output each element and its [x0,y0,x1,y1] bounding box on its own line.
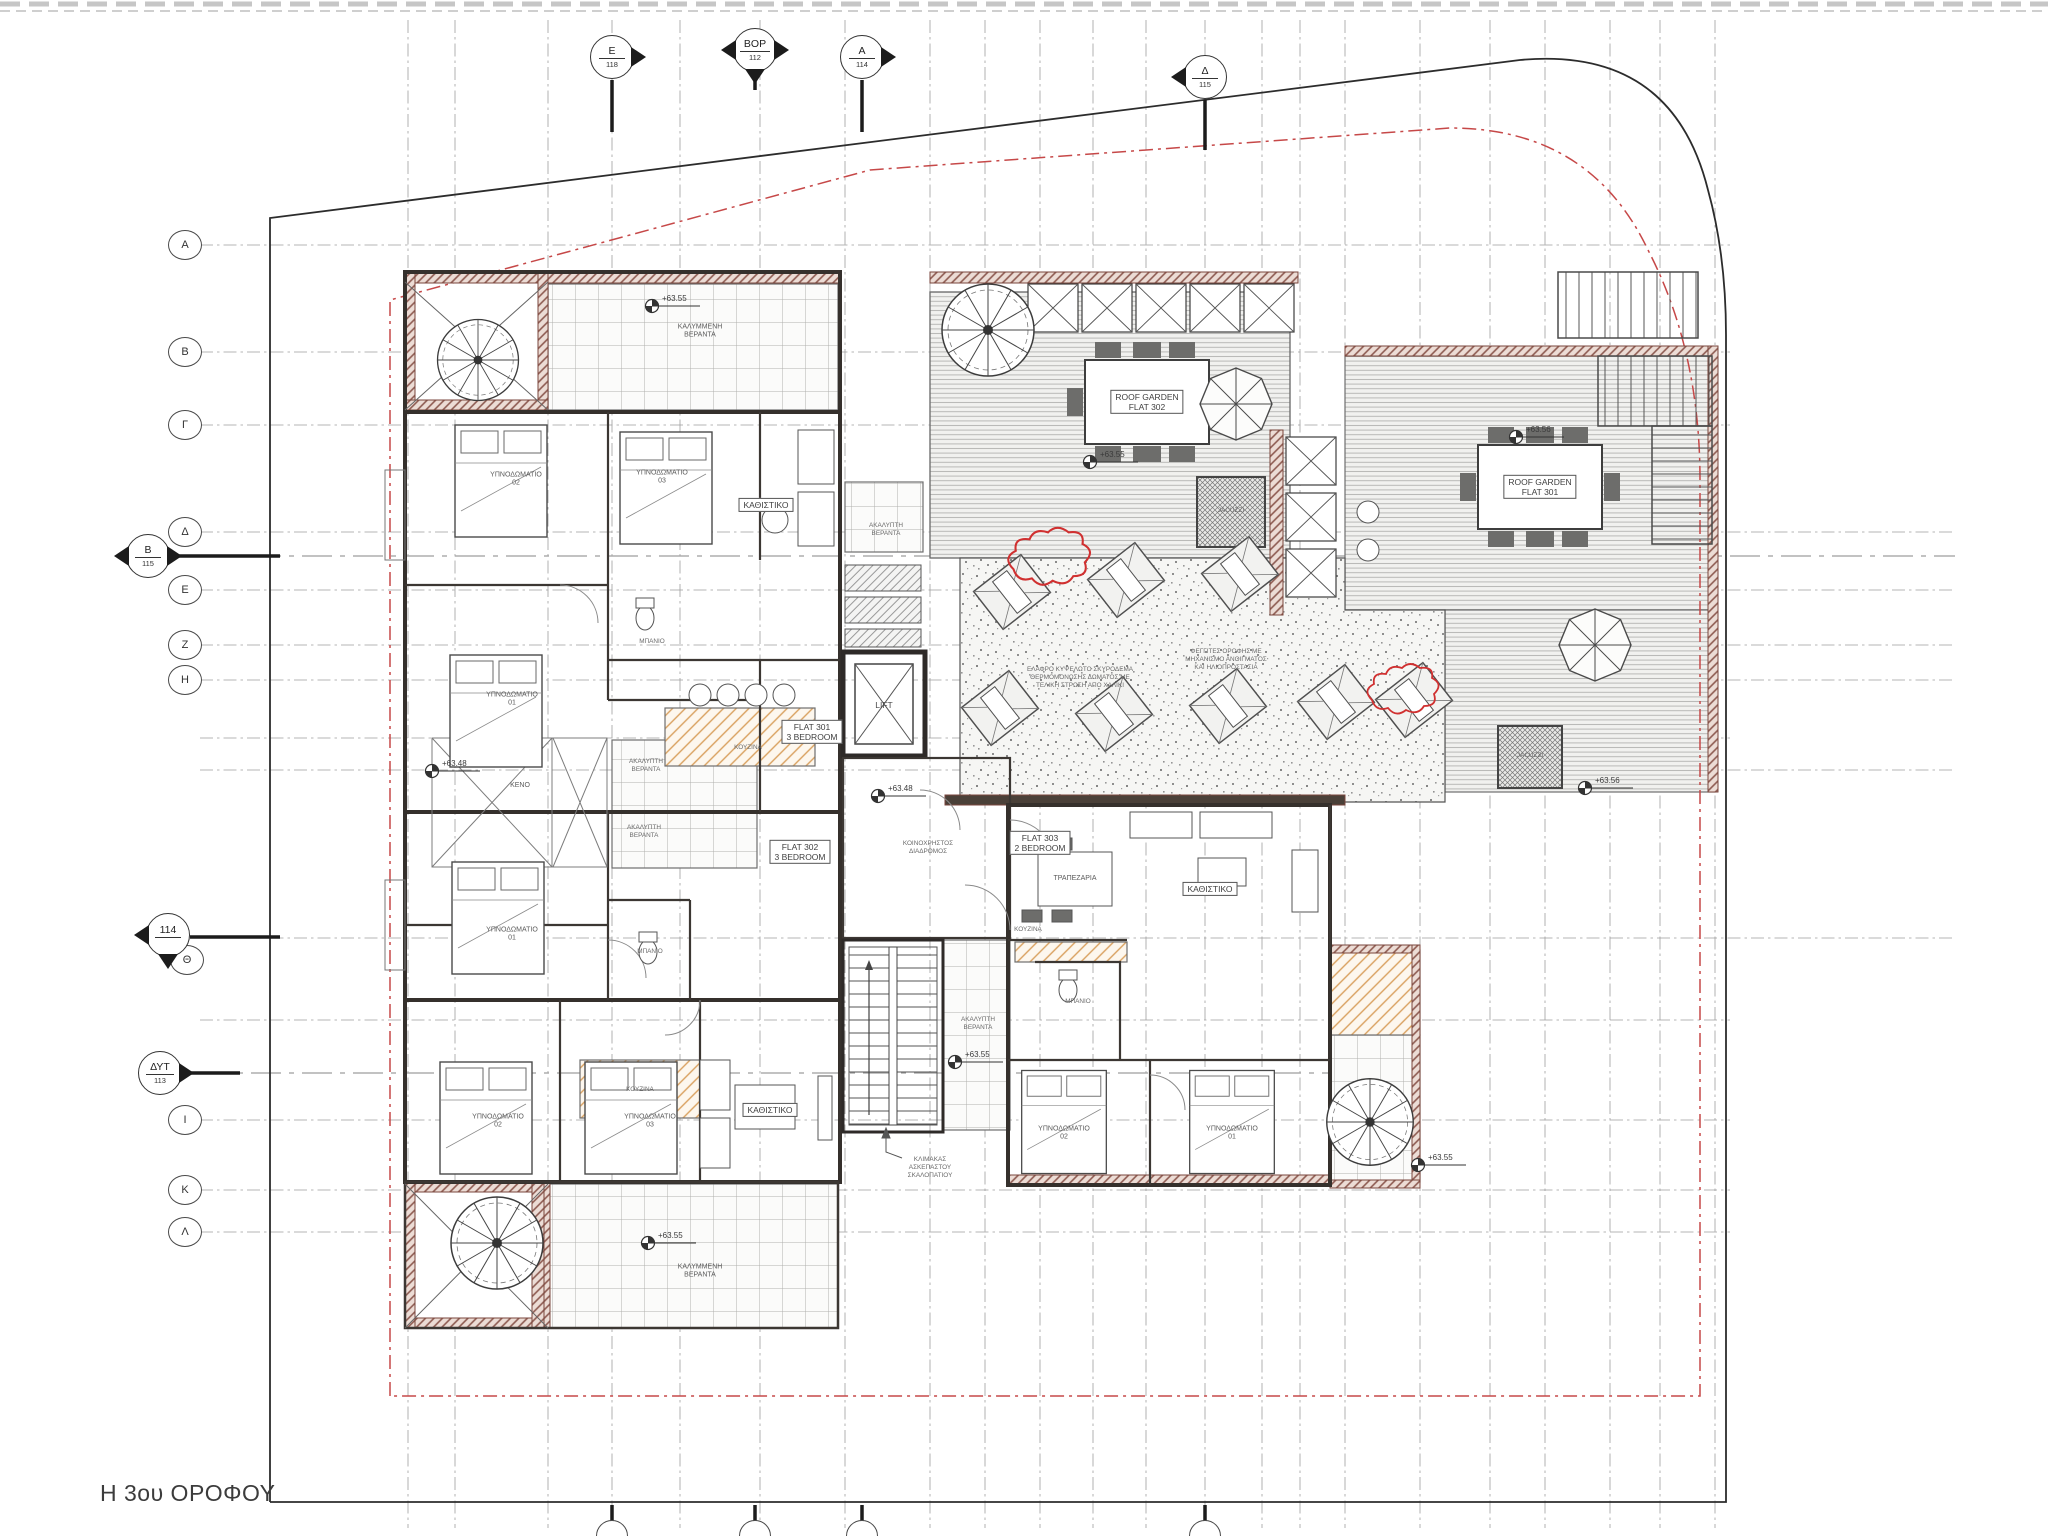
arrow-right-icon [774,40,789,60]
room-label-bath: ΜΠΑΝΙΟ [1065,998,1091,1006]
arrow-right-icon [167,546,182,566]
page-title: Η 3ου ΟΡΟΦΟΥ [100,1480,276,1507]
level-value: +63.55 [1428,1153,1453,1162]
section-marker-number: 115 [142,558,154,568]
section-marker-number: 118 [606,59,618,69]
room-label-bath: ΜΠΑΝΙΟ [639,638,665,646]
room-label-bedroom: ΥΠΝΟΔΩΜΑΤΙΟ 01 [1206,1126,1258,1143]
area-label-open-veranda: ΑΚΑΛΥΠΤΗ ΒΕΡΑΝΤΑ [629,758,663,774]
section-marker-d-115: Δ 115 [1183,55,1227,99]
section-marker-label: 114 [155,924,181,938]
north-marker-label: ΒΟΡ [740,38,770,52]
sheet-edge-band [0,4,2048,11]
grid-bubble-epsilon: Ε [168,575,202,605]
section-marker-e-118: Ε 118 [590,35,634,79]
arrow-right-icon [179,1063,194,1083]
room-label-bedroom: ΥΠΝΟΔΩΜΑΤΙΟ 02 [490,472,542,489]
room-label-living: ΚΑΘΙΣΤΙΚΟ [1183,882,1238,896]
spiral-stair [1327,1079,1413,1165]
flat-tag-301: FLAT 301 3 BEDROOM [781,720,842,744]
arrow-down-icon [745,69,765,84]
arrow-right-icon [631,47,646,67]
room-label-kitchen: ΚΟΥΖΙΝΑ [1014,926,1042,934]
jacuzzi-label: JACUZZI [1517,752,1543,760]
corridor-label: ΚΟΙΝΟΧΡΗΣΤΟΣ ΔΙΑΔΡΟΜΟΣ [903,840,953,856]
grid-bubble-delta: Δ [168,517,202,547]
level-value: +63.55 [658,1231,683,1240]
area-label-covered-veranda: ΚΑΛΥΜΜΕΝΗ ΒΕΡΑΝΤΑ [678,324,723,341]
arrow-left-icon [134,925,149,945]
void-label: ΚΕΝΟ [510,782,530,790]
arrow-left-icon [721,40,736,60]
grid-bubble-iota: Ι [168,1105,202,1135]
roof-garden-302-label: ROOF GARDEN FLAT 302 [1110,390,1183,414]
section-marker-label: ΔΥΤ [146,1061,174,1075]
arrow-left-icon [114,546,129,566]
section-marker-a-114: Α 114 [840,35,884,79]
arrow-right-icon [881,47,896,67]
section-marker-number: 113 [154,1075,166,1085]
level-value: +63.48 [888,784,913,793]
section-marker-number: 115 [1199,79,1211,89]
stair-note: ΚΛΙΜΑΚΑΣ ΑΣΚΕΠΑΣΤΟΥ ΣΚΑΛΟΠΑΤΙΟΥ [908,1156,953,1180]
level-value: +63.48 [442,759,467,768]
room-label-kitchen: ΚΟΥΖΙΝΑ [734,744,762,752]
room-label-bedroom: ΥΠΝΟΔΩΜΑΤΙΟ 01 [486,692,538,709]
roof-garden-301-label: ROOF GARDEN FLAT 301 [1503,475,1576,499]
room-label-bedroom: ΥΠΝΟΔΩΜΑΤΙΟ 02 [472,1114,524,1131]
section-marker-number: 114 [856,59,868,69]
section-marker-label: Δ [1192,65,1218,79]
area-label-open-veranda: ΑΚΑΛΥΠΤΗ ΒΕΡΑΝΤΑ [627,824,661,840]
flat-tag-303: FLAT 303 2 BEDROOM [1009,831,1070,855]
lift-label: LIFT [875,700,892,710]
level-value: +63.56 [1595,776,1620,785]
grid-bubble-alpha: Α [168,230,202,260]
level-value: +63.55 [1100,450,1125,459]
room-label-dining: ΤΡΑΠΕΖΑΡΙΑ [1053,875,1096,883]
north-marker-number: 112 [749,52,761,62]
room-label-bath: ΜΠΑΝΙΟ [637,948,663,956]
roof-note-2: ΦΕΓΓΙΤΕΣ ΟΡΟΦΗΣ ΜΕ ΜΗΧΑΝΙΣΜΟ ΑΝΟΙΓΜΑΤΟΣ … [1185,648,1267,672]
grid-bubble-beta: Β [168,337,202,367]
roof-note-1: ΕΛΑΦΡΟ ΚΥΨΕΛΩΤΟ ΣΚΥΡΟΔΕΜΑ ΘΕΡΜΟΜΟΝΩΣΗΣ Δ… [1027,666,1133,690]
room-label-living: ΚΑΘΙΣΤΙΚΟ [743,1103,798,1117]
spiral-stair [451,1197,543,1289]
section-marker-label: Ε [599,45,625,59]
area-label-covered-veranda: ΚΑΛΥΜΜΕΝΗ ΒΕΡΑΝΤΑ [678,1264,723,1281]
spiral-stair [438,320,519,401]
grid-bubble-eta: Η [168,665,202,695]
arrow-left-icon [1171,67,1186,87]
area-label-open-veranda: ΑΚΑΛΥΠΤΗ ΒΕΡΑΝΤΑ [961,1016,995,1032]
section-marker-b-115: Β 115 [126,534,170,578]
area-label-open-veranda: ΑΚΑΛΥΠΤΗ ΒΕΡΑΝΤΑ [869,522,903,538]
section-marker-dyt-113: ΔΥΤ 113 [138,1051,182,1095]
room-label-bedroom: ΥΠΝΟΔΩΜΑΤΙΟ 03 [624,1114,676,1131]
section-marker-114: 114 [146,913,190,957]
room-label-kitchen: ΚΟΥΖΙΝΑ [626,1086,654,1094]
parasol-icon [1559,609,1631,681]
floor-plan-drawing [0,0,2048,1536]
grid-bubble-gamma: Γ [168,410,202,440]
jacuzzi-label: JACUZZI [1218,507,1244,515]
grid-bubble-lambda: Λ [168,1217,202,1247]
room-label-bedroom: ΥΠΝΟΔΩΜΑΤΙΟ 02 [1038,1126,1090,1143]
level-value: +63.55 [662,294,687,303]
grid-bubble-zeta: Ζ [168,630,202,660]
parasol-icon [1200,368,1272,440]
floor-plan-sheet: ΚΑΛΥΜΜΕΝΗ ΒΕΡΑΝΤΑ ΚΑΛΥΜΜΕΝΗ ΒΕΡΑΝΤΑ ΑΚΑΛ… [0,0,2048,1536]
spiral-stair [942,284,1034,376]
arrow-down-icon [158,954,178,969]
level-value: +63.56 [1526,425,1551,434]
section-marker-label: Β [135,544,161,558]
grid-bubble-kappa: Κ [168,1175,202,1205]
room-label-bedroom: ΥΠΝΟΔΩΜΑΤΙΟ 03 [636,470,688,487]
room-label-living: ΚΑΘΙΣΤΙΚΟ [739,498,794,512]
section-marker-label: Α [849,45,875,59]
level-value: +63.55 [965,1050,990,1059]
north-marker-bop-112: ΒΟΡ 112 [733,28,777,72]
flat-tag-302: FLAT 302 3 BEDROOM [769,840,830,864]
room-label-bedroom: ΥΠΝΟΔΩΜΑΤΙΟ 01 [486,927,538,944]
